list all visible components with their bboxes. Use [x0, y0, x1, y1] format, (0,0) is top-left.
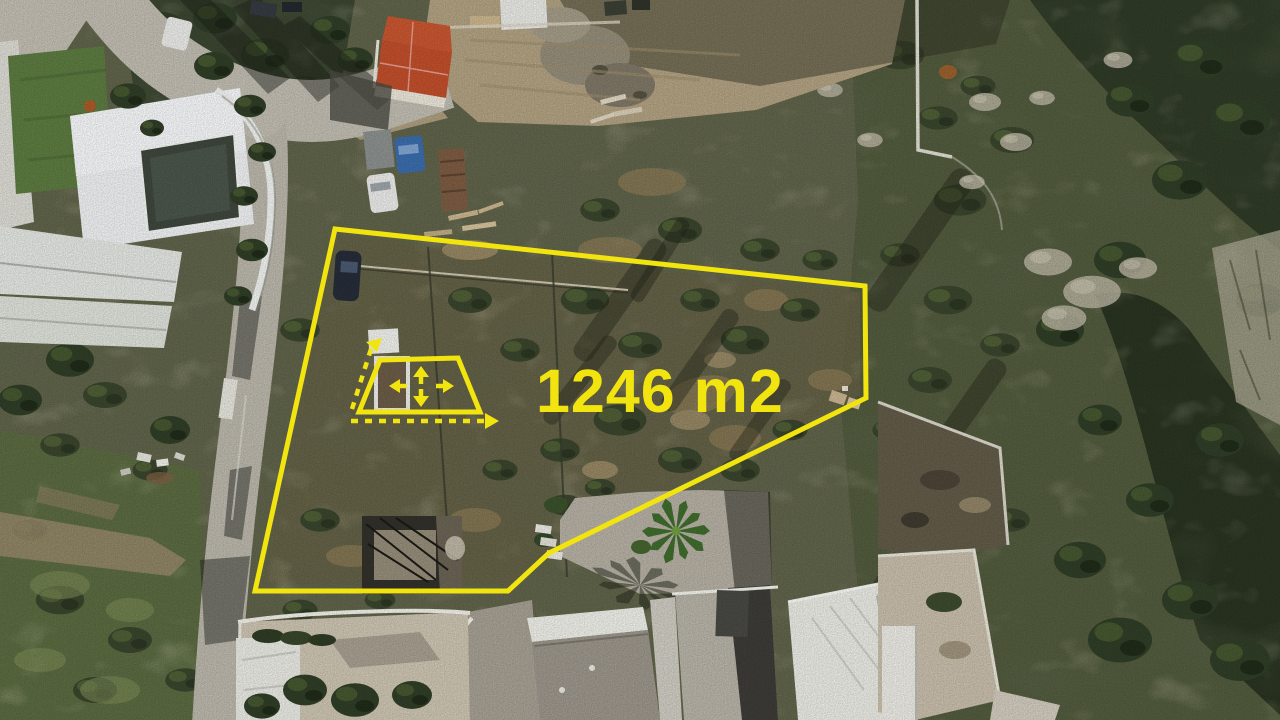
area-label: 1246 m2 — [536, 357, 784, 425]
aerial-photo: 1246 m2 — [0, 0, 1280, 720]
